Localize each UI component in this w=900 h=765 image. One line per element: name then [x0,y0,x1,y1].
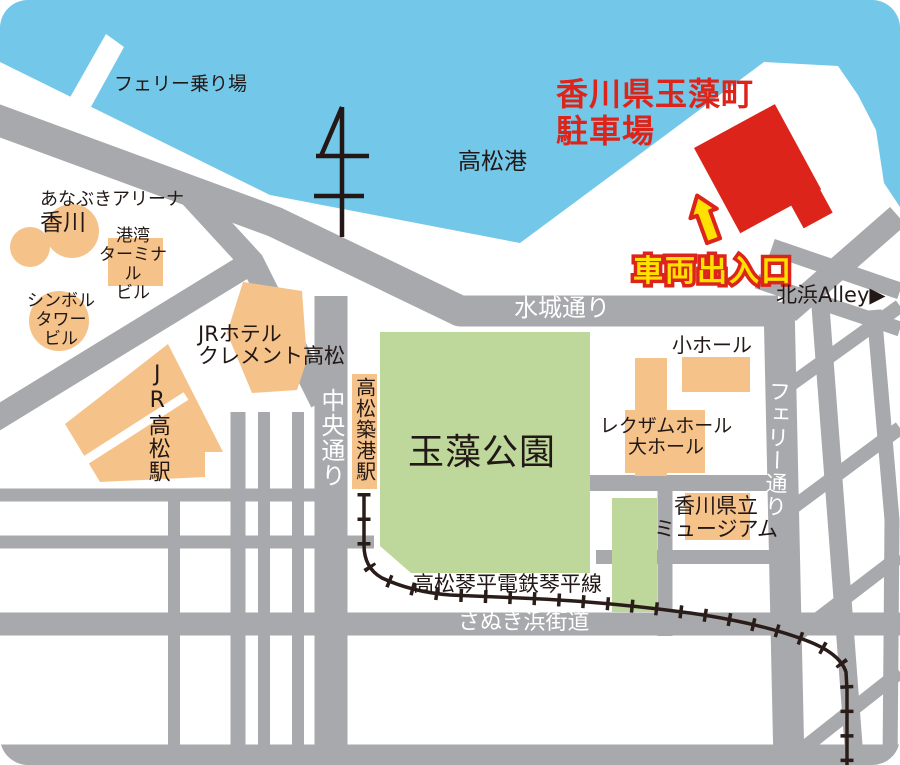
map-title: 香川県玉藻町 駐車場 [556,76,754,150]
port-label: 高松港 [458,150,527,175]
kitahama-alley-label: 北浜Alley▶ [776,284,886,307]
entrance-arrow-icon [684,191,727,246]
small-hall-label: 小ホール [672,335,752,357]
tamamo-park-label: 玉藻公園 [408,434,556,473]
chikko-station-label: 高松築港駅 [353,377,375,482]
rexxam-hall-label: レクザムホール 大ホール [596,416,736,458]
ferry-boarding-label: フェリー乗り場 [114,74,247,95]
symbol-tower-label: シンボル タワー ビル [20,292,102,349]
green-strip [612,498,657,612]
tamamo-parking-access-map: 香川県玉藻町 駐車場 車両出入口 車両出入口 高松港 フェリー乗り場 あなぶきア… [0,0,900,765]
vehicle-entrance-label: 車両出入口 車両出入口 [633,246,793,290]
kagawa-museum-label: 香川県立 ミュージアム [652,495,780,541]
chuo-dori-label: 中央通り [317,388,343,488]
map-title-line2: 駐車場 [556,113,754,150]
map-title-line1: 香川県玉藻町 [556,76,754,113]
anabuki-arena-label-line2: 香川 [40,211,86,236]
small-hall-building [682,357,750,392]
jr-hotel-label: JRホテル クレメント高松 [198,323,345,367]
jr-takamatsu-station-label: JR高松駅 [145,362,169,483]
mizuki-dori-label: 水城通り [514,296,610,322]
port-terminal-label: 港湾 ターミナル ビル [93,227,173,303]
sanuki-hama-kaido-label: さぬき浜街道 [458,611,590,635]
anabuki-arena-label-line1: あなぶきアリーナ [40,190,184,209]
kotohira-line-label: 高松琴平電鉄琴平線 [413,573,602,596]
